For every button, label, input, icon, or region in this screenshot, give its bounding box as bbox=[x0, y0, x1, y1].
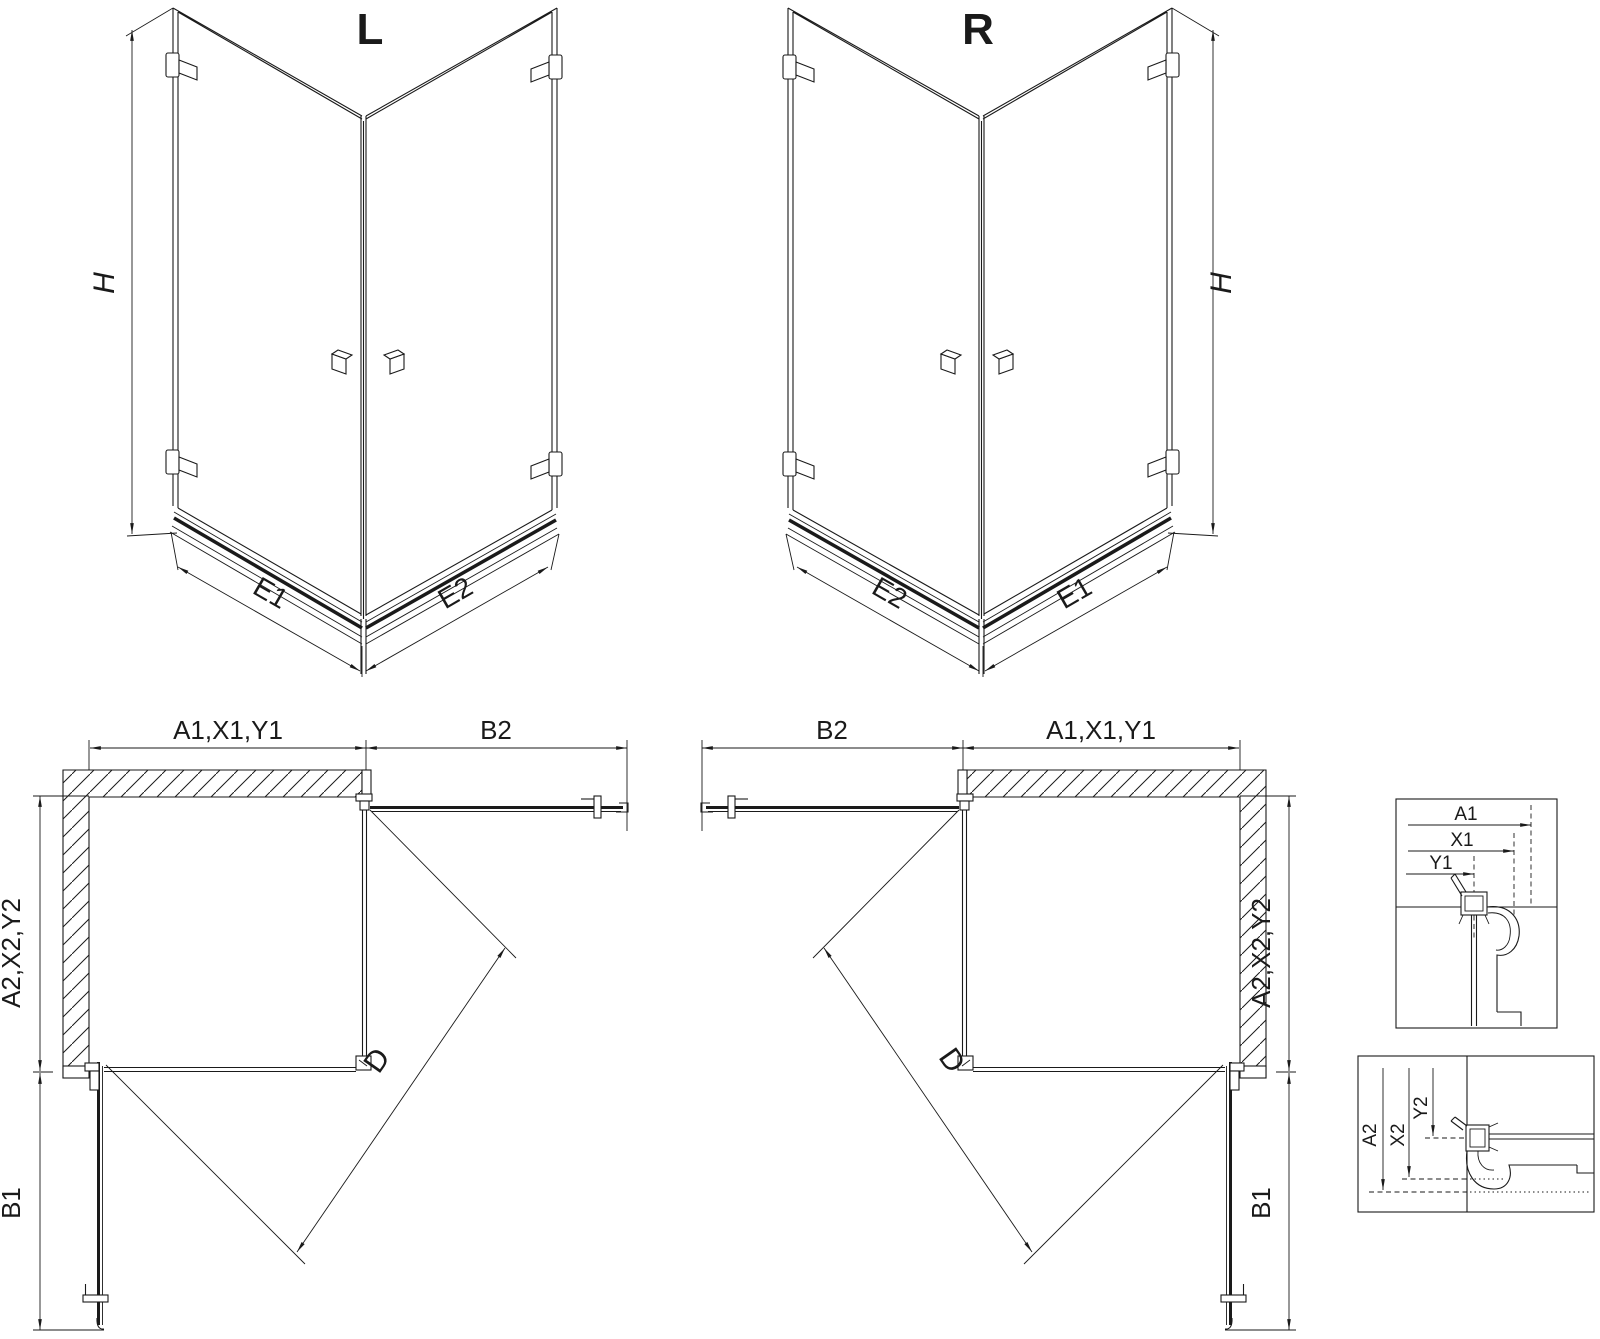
masonry-wall-hatched bbox=[63, 770, 362, 1078]
plan-right-geometry bbox=[701, 740, 1296, 1330]
detail-wall-fixing: A1 X1 Y1 bbox=[1396, 799, 1557, 1028]
dim-label-x1: X1 bbox=[1450, 830, 1473, 851]
dim-label-wall-depth: A2,X2,Y2 bbox=[0, 898, 26, 1008]
detail-floor-fixing: A2 X2 Y2 bbox=[1358, 1056, 1594, 1212]
dim-label-x2: X2 bbox=[1388, 1123, 1409, 1146]
dim-label-wall-width: A1,X1,Y1 bbox=[173, 715, 283, 745]
plan-view-left: A1,X1,Y1 B2 A2,X2,Y2 B1 D bbox=[0, 715, 628, 1330]
dim-label-a1: A1 bbox=[1454, 804, 1477, 825]
glass-section bbox=[1489, 1134, 1594, 1139]
plan-view-right: B2 A1,X1,Y1 A2,X2,Y2 B1 D bbox=[701, 715, 1296, 1330]
dim-label-wall-depth: A2,X2,Y2 bbox=[1246, 898, 1276, 1008]
tray-rim-inner bbox=[1488, 913, 1510, 950]
plan-left-geometry bbox=[33, 740, 628, 1330]
glass-section bbox=[1472, 915, 1477, 1026]
iso-right-title: R bbox=[962, 5, 994, 54]
masonry-wall-hatched bbox=[967, 770, 1266, 1078]
reference-dashed-lines bbox=[1369, 1138, 1468, 1192]
tray-rim-inner bbox=[1478, 1151, 1494, 1170]
iso-view-left: L H E1 E2 bbox=[88, 5, 562, 677]
dim-label-diagonal: D bbox=[357, 1042, 396, 1079]
iso-left-title: L bbox=[357, 5, 384, 54]
dim-label-wall-width: A1,X1,Y1 bbox=[1046, 715, 1156, 745]
dim-label-door-side: B1 bbox=[0, 1187, 26, 1219]
dim-label-y2: Y2 bbox=[1411, 1096, 1432, 1119]
iso-left-geometry bbox=[126, 8, 562, 677]
dim-label-height: H bbox=[1205, 272, 1238, 294]
iso-view-right: R H E2 E1 bbox=[783, 5, 1238, 677]
dim-label-a2: A2 bbox=[1360, 1123, 1381, 1146]
drawing-canvas: L H E1 E2 R H E2 E1 A1,X1,Y1 B2 A2,X2,Y2… bbox=[0, 0, 1600, 1339]
dim-label-diagonal: D bbox=[932, 1042, 971, 1079]
seal-flap bbox=[1451, 1117, 1467, 1130]
technical-drawing-sheet: L H E1 E2 R H E2 E1 A1,X1,Y1 B2 A2,X2,Y2… bbox=[0, 0, 1600, 1339]
dim-label-door-side: B1 bbox=[1246, 1187, 1276, 1219]
dim-label-door-top: B2 bbox=[480, 715, 512, 745]
tray-rim-section bbox=[1487, 907, 1521, 1026]
dim-label-y1: Y1 bbox=[1429, 853, 1452, 874]
dim-label-door-top: B2 bbox=[816, 715, 848, 745]
tray-rim-section bbox=[1467, 1151, 1594, 1189]
gasket-lips bbox=[1489, 1123, 1498, 1151]
reference-dotted-lines bbox=[1470, 1179, 1590, 1192]
iso-right-geometry bbox=[783, 8, 1219, 677]
dim-label-height: H bbox=[88, 272, 121, 294]
